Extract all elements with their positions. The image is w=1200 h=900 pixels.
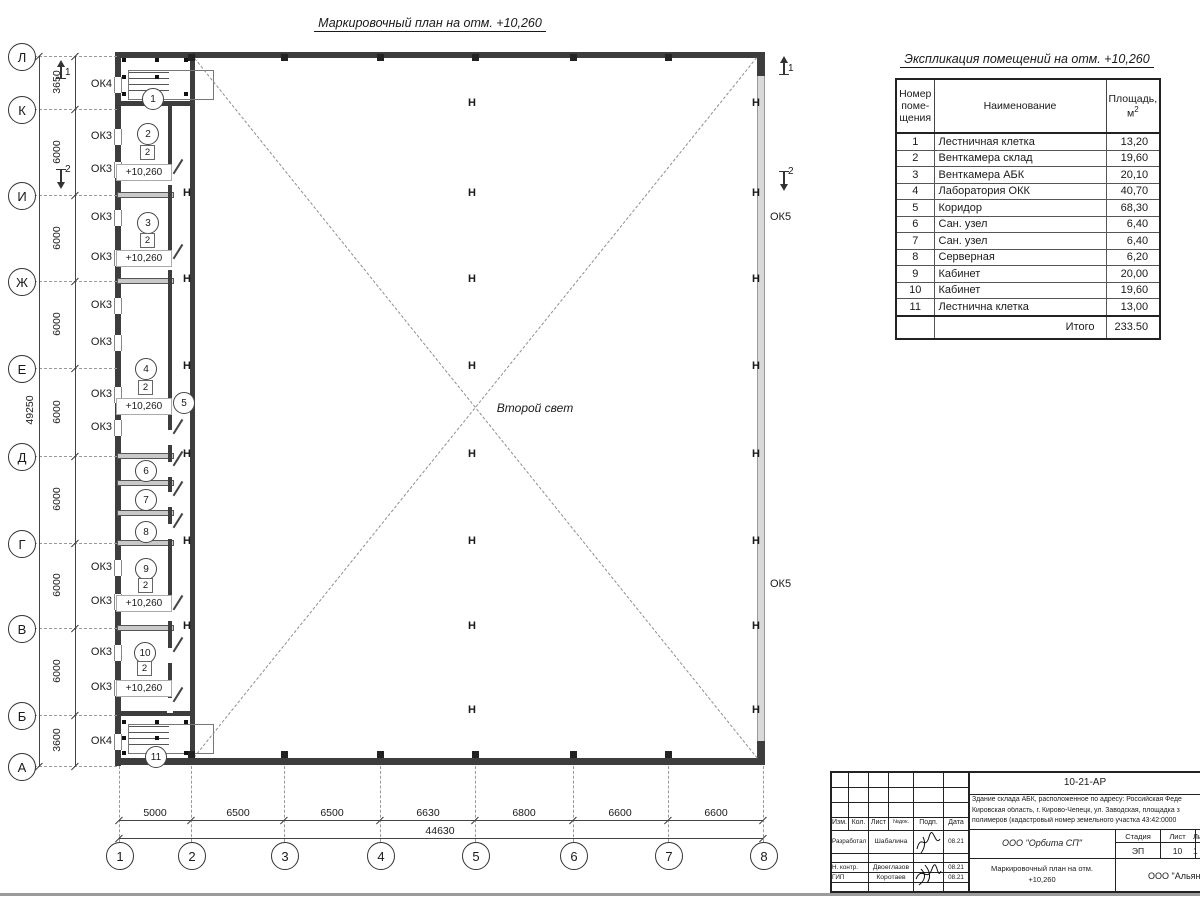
room-number: 8 — [135, 521, 157, 543]
dim-value: 6000 — [51, 382, 63, 442]
table-row: 2Венткамера склад19,60 — [896, 150, 1160, 167]
tb-address-line: Здание склада АБК, расположенное по адре… — [972, 796, 1200, 803]
table-cell: 8 — [896, 249, 934, 266]
table-cell: 9 — [896, 266, 934, 283]
window-label: ОК5 — [770, 578, 791, 590]
column-h: H — [183, 187, 191, 199]
column-h: H — [468, 273, 476, 285]
tb-address-line: полимеров (кадастровый номер земельного … — [972, 817, 1200, 824]
table-cell: Сан. узел — [934, 233, 1106, 250]
axis-line — [191, 766, 192, 842]
table-cell: 19,60 — [1106, 282, 1160, 299]
dim-line — [119, 820, 763, 821]
table-header: Площадь,м2 — [1106, 79, 1160, 133]
tb-name: Шабалина — [869, 838, 913, 845]
table-cell: 6,40 — [1106, 216, 1160, 233]
table-cell: Лаборатория ОКК — [934, 183, 1106, 200]
table-row: 10Кабинет19,60 — [896, 282, 1160, 299]
drawing-sheet: Маркировочный план на отм. +10,260 ОК4ОК… — [0, 0, 1200, 900]
door-leaf — [173, 451, 183, 466]
tb-address-line: Кировская область, г. Кирово-Чепецк, ул.… — [972, 807, 1200, 814]
tb-line — [830, 802, 968, 803]
explication-table: Номер поме- щенияНаименованиеПлощадь,м21… — [895, 78, 1161, 340]
door-leaf — [173, 687, 183, 702]
wall-stair — [117, 711, 195, 716]
column-h: H — [183, 360, 191, 372]
table-row: 9Кабинет20,00 — [896, 266, 1160, 283]
tb-line — [830, 853, 968, 854]
column-mark — [665, 751, 672, 758]
second-light-label: Второй свет — [445, 401, 625, 415]
table-cell: 40,70 — [1106, 183, 1160, 200]
wall-interior — [117, 625, 174, 631]
column-mark — [472, 54, 479, 61]
column-dot — [122, 92, 126, 96]
dim-value: 6500 — [208, 807, 268, 819]
column-mark — [570, 54, 577, 61]
section-bar — [56, 78, 66, 79]
table-cell — [896, 316, 934, 339]
tb-org1: ООО "Орбита СП" — [975, 838, 1109, 848]
table-cell: 6 — [896, 216, 934, 233]
table-cell: Кабинет — [934, 266, 1106, 283]
tb-grid-header: Лист — [869, 819, 888, 826]
column-dot — [155, 58, 159, 62]
axis-line — [475, 766, 476, 842]
wall-bottom — [117, 758, 763, 765]
axis-circle: 2 — [178, 842, 206, 870]
window-label: ОК4 — [70, 735, 112, 747]
axis-circle: Д — [8, 443, 36, 471]
window-label: ОК5 — [770, 211, 791, 223]
room-table-title: Экспликация помещений на отм. +10,260 — [893, 52, 1161, 66]
dim-value: 6600 — [686, 807, 746, 819]
column-h: H — [183, 620, 191, 632]
type-mark: 2 — [140, 145, 155, 160]
window-opening — [114, 210, 122, 226]
wall-right-cap — [757, 52, 765, 76]
tb-line — [868, 771, 869, 891]
tb-role: Разработал — [832, 838, 868, 845]
axis-line — [284, 766, 285, 842]
table-cell: Сан. узел — [934, 216, 1106, 233]
tb-line — [968, 794, 1200, 795]
window-opening — [114, 420, 122, 436]
window-label: ОК3 — [70, 163, 112, 175]
table-row: 8Серверная6,20 — [896, 249, 1160, 266]
type-mark: 2 — [138, 578, 153, 593]
axis-circle: 6 — [560, 842, 588, 870]
column-h: H — [752, 620, 760, 632]
table-cell: 19,60 — [1106, 150, 1160, 167]
axis-circle: И — [8, 182, 36, 210]
room-number: 11 — [145, 746, 167, 768]
table-cell: Кабинет — [934, 282, 1106, 299]
tb-line — [943, 771, 944, 891]
section-arrow — [780, 184, 788, 191]
door-leaf — [173, 595, 183, 610]
table-cell: Лестничная клетка — [934, 133, 1106, 150]
dim-value: 6800 — [494, 807, 554, 819]
window-label: ОК3 — [70, 388, 112, 400]
table-cell: 5 — [896, 200, 934, 217]
stair-treads — [129, 726, 169, 750]
section-number: 1 — [788, 63, 794, 74]
axis-circle: Ж — [8, 268, 36, 296]
section-number: 2 — [65, 164, 71, 175]
table-cell: 6,20 — [1106, 249, 1160, 266]
dim-line — [75, 56, 76, 766]
dim-value: 6000 — [51, 294, 63, 354]
window-label: ОК3 — [70, 646, 112, 658]
wall-right-cap — [757, 741, 765, 765]
column-mark — [570, 751, 577, 758]
table-header: Номер поме- щения — [896, 79, 934, 133]
dim-value: 6000 — [51, 555, 63, 615]
table-cell: Лестнична клетка — [934, 299, 1106, 316]
tb-border — [830, 771, 1200, 773]
room-number: 2 — [137, 123, 159, 145]
column-h: H — [183, 448, 191, 460]
column-h: H — [468, 187, 476, 199]
column-h: H — [468, 620, 476, 632]
table-row: 7Сан. узел6,40 — [896, 233, 1160, 250]
table-cell: 4 — [896, 183, 934, 200]
tb-stage-value: 10 — [1162, 846, 1193, 856]
tb-line — [830, 787, 968, 788]
total-value: 233.50 — [1106, 316, 1160, 339]
room-number: 1 — [142, 88, 164, 110]
room-number: 3 — [137, 212, 159, 234]
sheet-edge — [0, 893, 1200, 896]
column-mark — [377, 54, 384, 61]
window-opening — [114, 77, 122, 93]
section-arrow — [780, 56, 788, 63]
tb-date: 08.21 — [944, 874, 968, 881]
column-h: H — [752, 704, 760, 716]
axis-circle: 1 — [106, 842, 134, 870]
door-leaf — [173, 481, 183, 496]
room-number: 4 — [135, 358, 157, 380]
table-cell: Венткамера склад — [934, 150, 1106, 167]
room-number: 5 — [173, 392, 195, 414]
window-label: ОК3 — [70, 561, 112, 573]
elevation-mark: +10,260 — [116, 398, 172, 415]
table-cell: 1 — [896, 133, 934, 150]
tb-line — [968, 829, 1200, 830]
table-row: 3Венткамера АБК20,10 — [896, 167, 1160, 184]
tb-stage-value: ЭП — [1117, 846, 1159, 856]
wall-interior — [117, 192, 174, 198]
table-cell: Коридор — [934, 200, 1106, 217]
column-dot — [122, 75, 126, 79]
column-h: H — [468, 97, 476, 109]
column-h: H — [468, 448, 476, 460]
table-cell: 2 — [896, 150, 934, 167]
column-h: H — [468, 704, 476, 716]
tb-grid-header: №док. — [889, 819, 913, 825]
tb-grid-header: Дата — [944, 819, 968, 826]
window-opening — [114, 734, 122, 750]
window-opening — [114, 560, 122, 576]
elevation-mark: +10,260 — [116, 164, 172, 181]
table-row: 4Лаборатория ОКК40,70 — [896, 183, 1160, 200]
wall-interior — [117, 453, 174, 459]
window-label: ОК3 — [70, 681, 112, 693]
tb-line — [830, 882, 968, 883]
column-mark — [281, 54, 288, 61]
column-dot — [155, 736, 159, 740]
table-row: 11Лестнична клетка13,00 — [896, 299, 1160, 316]
room-number: 7 — [135, 489, 157, 511]
window-opening — [114, 335, 122, 351]
column-h: H — [752, 448, 760, 460]
tb-role: Н. контр. — [832, 864, 868, 871]
column-mark — [281, 751, 288, 758]
window-label: ОК3 — [70, 251, 112, 263]
table-cell: 3 — [896, 167, 934, 184]
tb-stage-header: Стадия — [1117, 832, 1159, 841]
axis-circle: А — [8, 753, 36, 781]
axis-circle: 7 — [655, 842, 683, 870]
section-arrow — [57, 60, 65, 67]
tb-line — [830, 872, 968, 873]
window-label: ОК4 — [70, 78, 112, 90]
door-leaf — [173, 419, 183, 434]
elevation-mark: +10,260 — [116, 595, 172, 612]
column-mark — [377, 751, 384, 758]
tb-name: Коротаев — [869, 874, 913, 881]
tb-grid-header: Подп. — [914, 819, 943, 826]
dim-value: 6000 — [51, 208, 63, 268]
axis-circle: 5 — [462, 842, 490, 870]
column-h: H — [183, 273, 191, 285]
axis-line — [119, 766, 120, 842]
column-mark — [188, 54, 195, 61]
window-opening — [114, 298, 122, 314]
total-label: Итого — [934, 316, 1106, 339]
tb-line — [830, 830, 968, 831]
column-h: H — [752, 97, 760, 109]
dim-value: 6600 — [590, 807, 650, 819]
tb-line — [1115, 829, 1116, 891]
column-dot — [122, 720, 126, 724]
tb-stage-header: Лист — [1162, 832, 1193, 841]
dim-line — [119, 838, 763, 839]
dim-value: 6000 — [51, 469, 63, 529]
tb-sheet-title: +10,260 — [975, 875, 1109, 884]
type-mark: 2 — [140, 233, 155, 248]
section-number: 2 — [788, 166, 794, 177]
table-cell: 7 — [896, 233, 934, 250]
column-mark — [665, 54, 672, 61]
column-h: H — [752, 360, 760, 372]
tb-line — [968, 771, 970, 891]
window-opening — [114, 129, 122, 145]
tb-name: Двоеглазов — [869, 864, 913, 871]
axis-circle: К — [8, 96, 36, 124]
tb-line — [830, 817, 968, 818]
type-mark: 2 — [137, 661, 152, 676]
dim-value: 6000 — [51, 641, 63, 701]
door-leaf — [173, 244, 183, 259]
window-opening — [114, 645, 122, 661]
axis-circle: 4 — [367, 842, 395, 870]
axis-line — [573, 766, 574, 842]
column-dot — [184, 92, 188, 96]
door-leaf — [173, 637, 183, 652]
axis-line — [763, 766, 764, 842]
tb-doc-number: 10-21-АР — [975, 777, 1195, 788]
column-dot — [184, 720, 188, 724]
tb-grid-header: Изм. — [831, 819, 848, 826]
table-header: Наименование — [934, 79, 1106, 133]
wall-interior — [117, 278, 174, 284]
axis-circle: Е — [8, 355, 36, 383]
dim-total: 44630 — [410, 825, 470, 837]
column-dot — [184, 751, 188, 755]
column-h: H — [752, 535, 760, 547]
column-mark — [188, 751, 195, 758]
column-h: H — [752, 187, 760, 199]
table-cell: 20,10 — [1106, 167, 1160, 184]
column-dot — [155, 75, 159, 79]
axis-circle: Г — [8, 530, 36, 558]
table-cell: Серверная — [934, 249, 1106, 266]
column-h: H — [752, 273, 760, 285]
table-total-row: Итого233.50 — [896, 316, 1160, 339]
axis-line — [380, 766, 381, 842]
column-mark — [472, 751, 479, 758]
tb-line — [968, 858, 1200, 859]
dim-line — [39, 56, 40, 766]
table-row: 1Лестничная клетка13,20 — [896, 133, 1160, 150]
door-leaf — [173, 513, 183, 528]
column-dot — [184, 58, 188, 62]
elevation-mark: +10,260 — [116, 680, 172, 697]
type-mark: 2 — [138, 380, 153, 395]
signature-icon — [913, 831, 943, 889]
window-label: ОК3 — [70, 299, 112, 311]
dim-value: 3600 — [51, 710, 63, 770]
tb-date: 08.21 — [944, 838, 968, 845]
dim-value: 5000 — [125, 807, 185, 819]
table-row: 5Коридор68,30 — [896, 200, 1160, 217]
table-cell: 13,00 — [1106, 299, 1160, 316]
window-label: ОК3 — [70, 595, 112, 607]
section-number: 1 — [65, 67, 71, 78]
table-cell: 13,20 — [1106, 133, 1160, 150]
dim-total: 49250 — [24, 380, 36, 440]
column-dot — [122, 58, 126, 62]
table-cell: 11 — [896, 299, 934, 316]
tb-line — [1160, 829, 1161, 858]
column-h: H — [183, 535, 191, 547]
tb-line — [1115, 842, 1200, 843]
window-label: ОК3 — [70, 421, 112, 433]
table-cell: Венткамера АБК — [934, 167, 1106, 184]
room-number: 6 — [135, 460, 157, 482]
column-h: H — [468, 535, 476, 547]
column-dot — [122, 751, 126, 755]
table-cell: 68,30 — [1106, 200, 1160, 217]
section-bar — [779, 74, 789, 75]
dim-value: 6500 — [302, 807, 362, 819]
axis-circle: 3 — [271, 842, 299, 870]
axis-line — [668, 766, 669, 842]
tb-date: 08.21 — [944, 864, 968, 871]
window-label: ОК3 — [70, 211, 112, 223]
window-label: ОК3 — [70, 130, 112, 142]
column-h: H — [468, 360, 476, 372]
elevation-mark: +10,260 — [116, 250, 172, 267]
window-label: ОК3 — [70, 336, 112, 348]
tb-role: ГИП — [832, 874, 868, 881]
table-row: 6Сан. узел6,40 — [896, 216, 1160, 233]
door-leaf — [173, 159, 183, 174]
column-dot — [155, 720, 159, 724]
column-dot — [122, 736, 126, 740]
axis-circle: Л — [8, 43, 36, 71]
room-number: 9 — [135, 558, 157, 580]
section-arrow — [57, 182, 65, 189]
room-explication-table: Номер поме- щенияНаименованиеПлощадь,м21… — [895, 78, 1161, 340]
axis-circle: Б — [8, 702, 36, 730]
table-cell: 20,00 — [1106, 266, 1160, 283]
tb-sheet-title: Маркировочный план на отм. — [975, 864, 1109, 873]
axis-circle: 8 — [750, 842, 778, 870]
tb-stage-header: Листов — [1193, 832, 1200, 841]
table-cell: 10 — [896, 282, 934, 299]
tb-stage-value: 1 — [1193, 846, 1200, 856]
dim-value: 6630 — [398, 807, 458, 819]
table-cell: 6,40 — [1106, 233, 1160, 250]
tb-org2: ООО "Альянс — [1148, 871, 1200, 881]
tb-border — [830, 891, 1200, 893]
wall-right — [757, 52, 765, 765]
axis-circle: В — [8, 615, 36, 643]
tb-grid-header: Кол. — [849, 819, 868, 826]
